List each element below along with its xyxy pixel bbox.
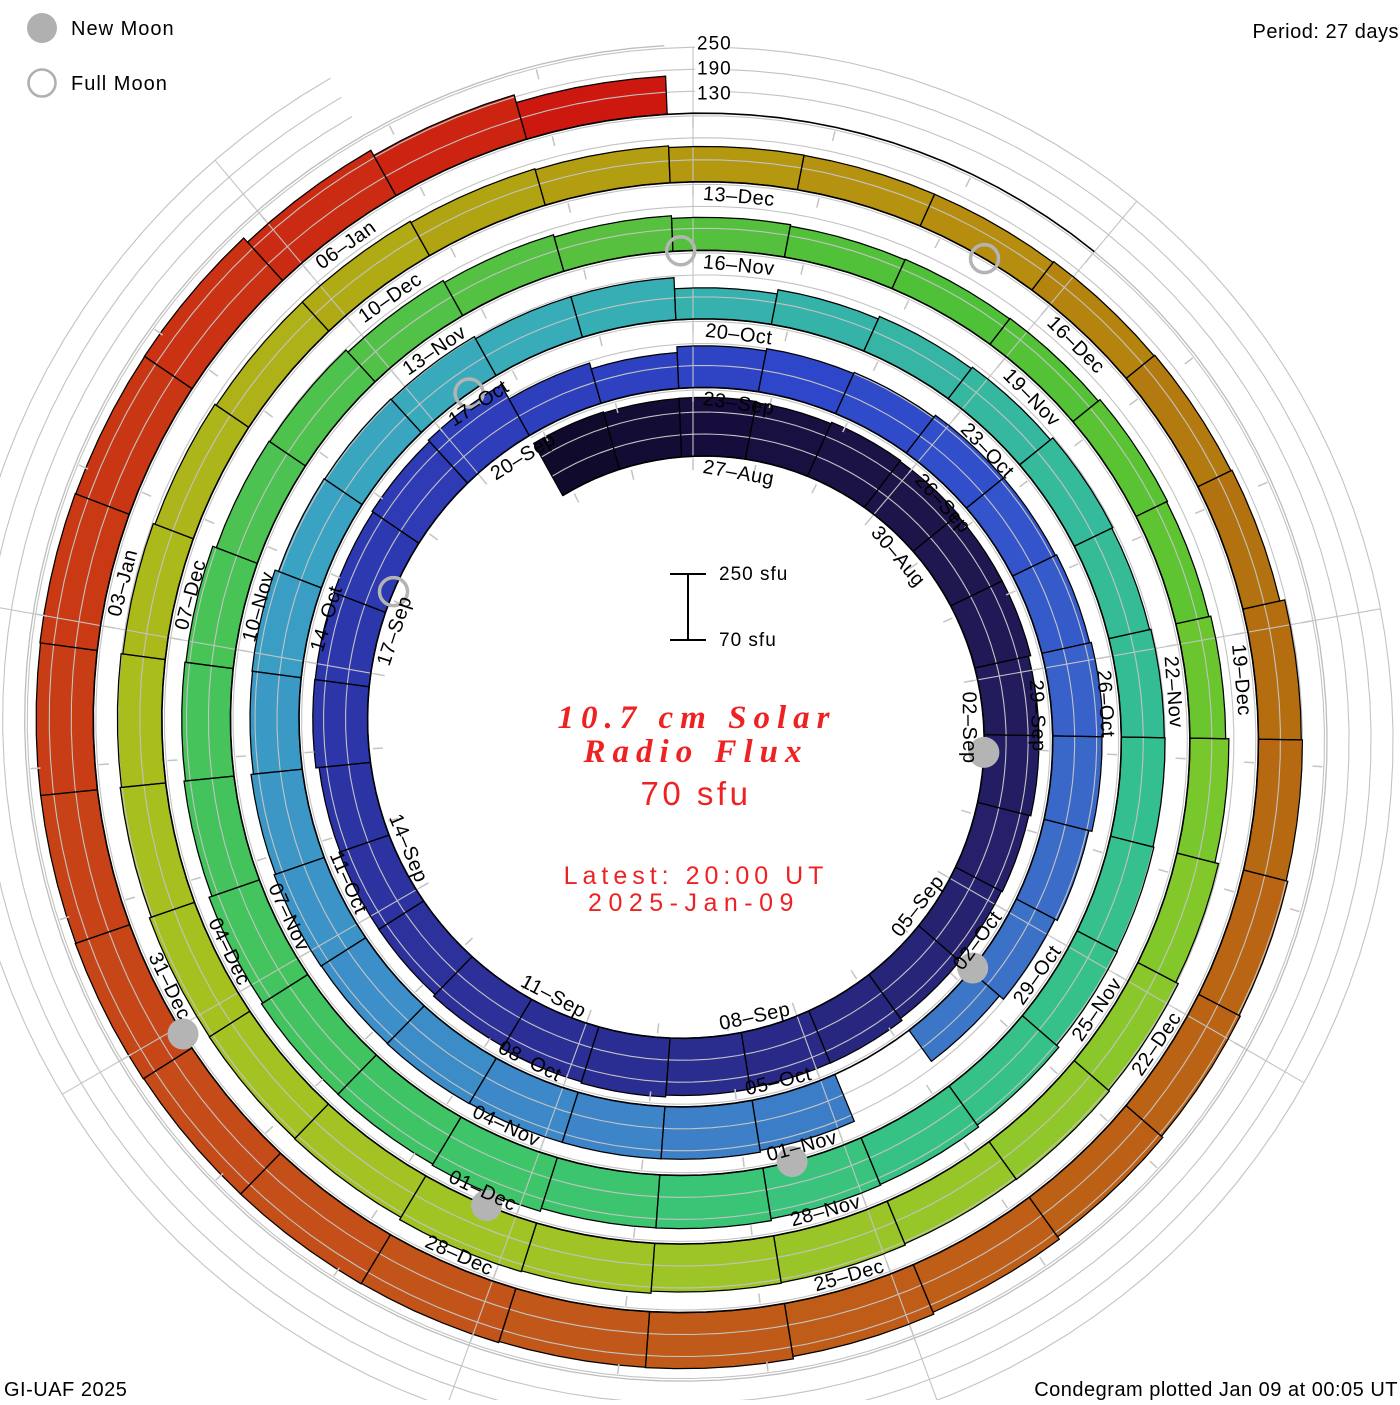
svg-text:Radio Flux: Radio Flux [583,734,809,770]
svg-text:190: 190 [697,59,732,80]
svg-text:Full Moon: Full Moon [71,73,168,95]
svg-text:130: 130 [697,84,732,105]
svg-text:70 sfu: 70 sfu [719,630,777,651]
svg-text:New Moon: New Moon [71,18,175,40]
svg-text:29–Sep: 29–Sep [1025,679,1050,752]
svg-text:GI-UAF 2025: GI-UAF 2025 [4,1379,127,1400]
svg-text:Condegram plotted Jan 09 at 00: Condegram plotted Jan 09 at 00:05 UT [1034,1379,1398,1400]
svg-text:Period: 27 days: Period: 27 days [1253,21,1399,43]
svg-text:10.7 cm Solar: 10.7 cm Solar [558,700,837,736]
svg-text:26–Oct: 26–Oct [1092,669,1118,738]
svg-text:02–Sep: 02–Sep [958,692,981,764]
svg-text:250: 250 [697,34,732,55]
svg-text:Latest: 20:00 UT: Latest: 20:00 UT [564,862,829,890]
svg-text:250 sfu: 250 sfu [719,564,788,585]
svg-text:2025-Jan-09: 2025-Jan-09 [588,889,800,917]
svg-text:70 sfu: 70 sfu [641,775,752,812]
